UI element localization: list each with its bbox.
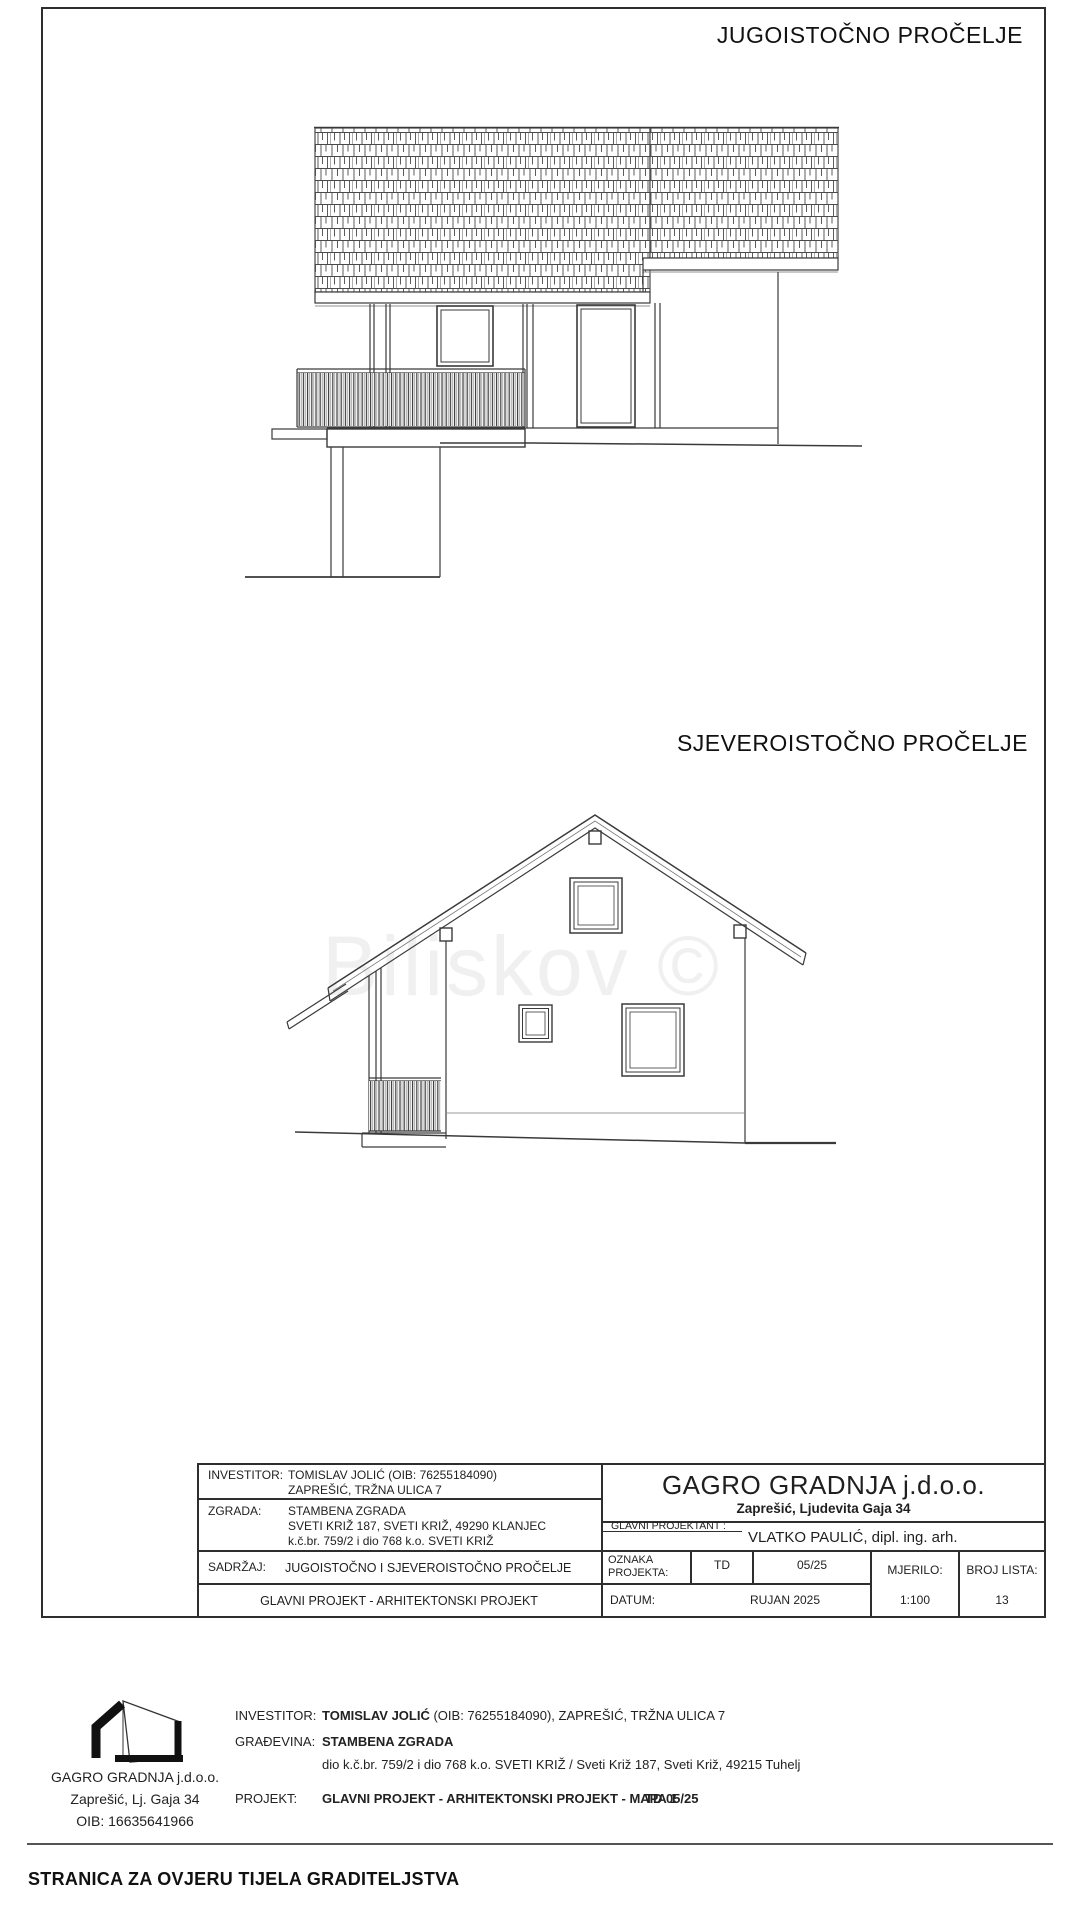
mjerilo-value: 1:100: [872, 1593, 958, 1607]
datum-label: DATUM:: [610, 1593, 655, 1607]
footer-gradjevina-label: GRAĐEVINA:: [235, 1734, 315, 1749]
datum-value: RUJAN 2025: [700, 1593, 870, 1607]
elevation2-title: SJEVEROISTOČNO PROČELJE: [677, 730, 1028, 757]
company-address: Zaprešić, Ljudevita Gaja 34: [601, 1501, 1046, 1516]
logo-oib: OIB: 16635641966: [40, 1813, 230, 1829]
oznaka-td: TD: [692, 1558, 752, 1572]
footer-projekt-value: GLAVNI PROJEKT - ARHITEKTONSKI PROJEKT -…: [322, 1791, 677, 1806]
certification-title: STRANICA ZA OVJERU TIJELA GRADITELJSTVA: [28, 1869, 459, 1890]
broj-lista-label: BROJ LISTA:: [960, 1563, 1044, 1577]
investitor-line1: TOMISLAV JOLIĆ (OIB: 76255184090): [288, 1468, 497, 1482]
footer-gradjevina-value: STAMBENA ZGRADA: [322, 1734, 453, 1749]
footer-divider: [27, 1843, 1053, 1845]
investitor-name: TOMISLAV JOLIĆ: [322, 1708, 430, 1723]
zgrada-label: ZGRADA:: [208, 1504, 261, 1518]
drawing-sheet: Biliskov ©: [0, 0, 1080, 1921]
zgrada-line1: STAMBENA ZGRADA: [288, 1504, 406, 1518]
sadrzaj-value: JUGOISTOČNO I SJEVEROISTOČNO PROČELJE: [285, 1561, 571, 1575]
glavni-projektant-value: VLATKO PAULIĆ, dipl. ing. arh.: [748, 1529, 958, 1546]
gagro-logo-icon: [85, 1697, 190, 1769]
footer-projekt-label: PROJEKT:: [235, 1791, 297, 1806]
footer-gradjevina-detail: dio k.č.br. 759/2 i dio 768 k.o. SVETI K…: [322, 1757, 800, 1772]
glavni-projektant-label: GLAVNI PROJEKTANT :: [611, 1520, 726, 1532]
zgrada-line3: k.č.br. 759/2 i dio 768 k.o. SVETI KRIŽ: [288, 1534, 493, 1548]
footer-projekt-td: TD 05/25: [645, 1791, 698, 1806]
oznaka-label-line1: OZNAKA: [608, 1554, 653, 1566]
logo-company: GAGRO GRADNJA j.d.o.o.: [40, 1769, 230, 1785]
sheet-border-frame: [41, 7, 1046, 1618]
footer-investitor-value: TOMISLAV JOLIĆ (OIB: 76255184090), ZAPRE…: [322, 1708, 725, 1723]
logo-address: Zaprešić, Lj. Gaja 34: [40, 1791, 230, 1807]
investitor-label: INVESTITOR:: [208, 1468, 283, 1482]
investitor-line2: ZAPREŠIĆ, TRŽNA ULICA 7: [288, 1483, 442, 1497]
project-row: GLAVNI PROJEKT - ARHITEKTONSKI PROJEKT: [197, 1594, 601, 1608]
sadrzaj-label: SADRŽAJ:: [208, 1560, 266, 1574]
footer-investitor-label: INVESTITOR:: [235, 1708, 316, 1723]
company-name: GAGRO GRADNJA j.d.o.o.: [601, 1470, 1046, 1501]
mjerilo-label: MJERILO:: [872, 1563, 958, 1577]
oznaka-label-line2: PROJEKTA:: [608, 1567, 668, 1579]
zgrada-line2: SVETI KRIŽ 187, SVETI KRIŽ, 49290 KLANJE…: [288, 1519, 546, 1533]
oznaka-value: 05/25: [754, 1558, 870, 1572]
elevation1-title: JUGOISTOČNO PROČELJE: [717, 22, 1023, 49]
investitor-rest: (OIB: 76255184090), ZAPREŠIĆ, TRŽNA ULIC…: [430, 1708, 725, 1723]
broj-lista-value: 13: [960, 1593, 1044, 1607]
